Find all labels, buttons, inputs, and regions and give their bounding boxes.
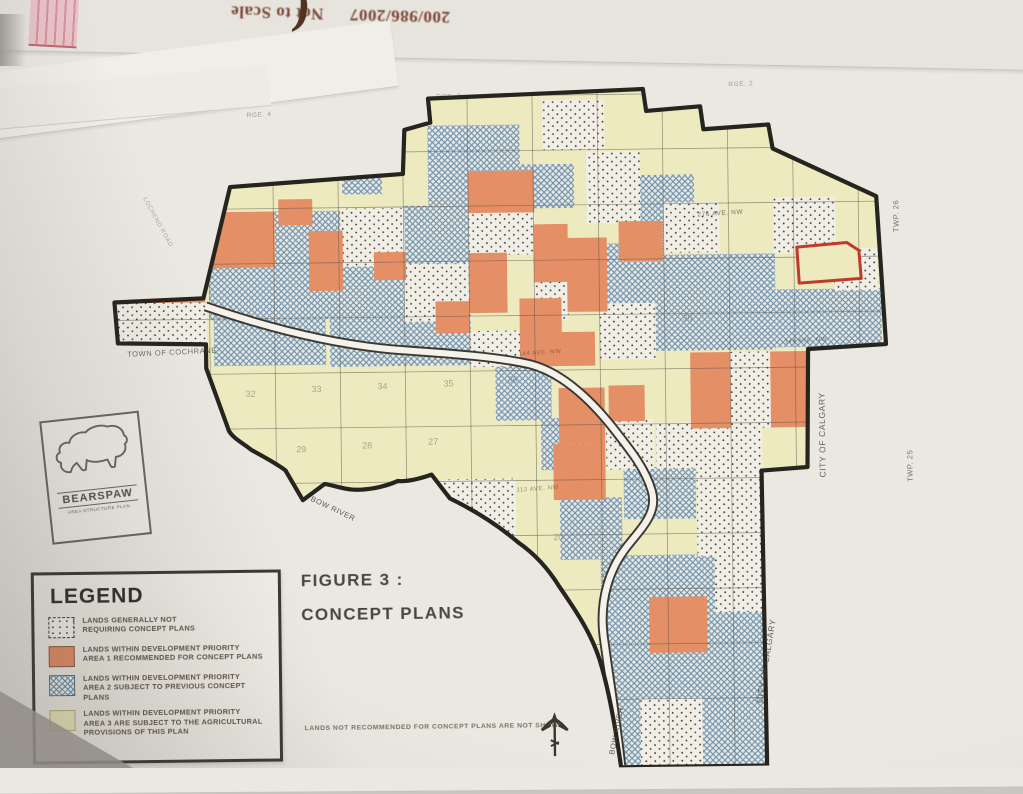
legend-title: LEGEND [50, 582, 278, 609]
legend-item-label: LANDS GENERALLY NOT REQUIRING CONCEPT PL… [82, 615, 195, 635]
section-number: 30 [683, 312, 693, 322]
priority-cell [403, 205, 470, 266]
priority-cell [560, 497, 623, 560]
priority-cell [696, 466, 761, 557]
priority-cell [623, 466, 696, 519]
legend-item-label: LANDS WITHIN DEVELOPMENT PRIORITY AREA 2… [83, 672, 271, 703]
map-label: CITY OF CALGARY [817, 392, 828, 477]
priority-cell [640, 698, 703, 765]
section-number: 20 [553, 532, 563, 542]
north-arrow-icon [534, 710, 575, 762]
figure-caption: FIGURE 3 : CONCEPT PLANS [301, 569, 465, 639]
legend: LEGEND LANDS GENERALLY NOT REQUIRING CON… [31, 569, 283, 764]
section-number: 32 [245, 389, 255, 399]
priority-cell [608, 385, 644, 421]
priority-cell [535, 332, 595, 367]
legend-item-label: LANDS WITHIN DEVELOPMENT PRIORITY AREA 3… [83, 707, 262, 738]
photo-of-paper-map: 200/986/2007 Not to Scale ( [0, 0, 1023, 768]
legend-swatch-orange [49, 646, 75, 667]
legend-swatch-hatch [49, 675, 75, 696]
priority-cell [770, 351, 809, 427]
figure-caption-line2: CONCEPT PLANS [301, 603, 465, 625]
priority-cell [374, 252, 406, 280]
legend-item: LANDS GENERALLY NOT REQUIRING CONCEPT PL… [48, 614, 270, 639]
bear-icon [46, 413, 138, 486]
section-number: 34 [377, 381, 387, 391]
priority-cell [469, 253, 508, 313]
printed-map-sheet: 32333435362928272030 TOWN OF COCHRANECIT… [0, 0, 1023, 775]
section-number: 36 [507, 375, 517, 385]
map-label: RGE. 2 [728, 80, 753, 88]
section-number: 33 [311, 384, 321, 394]
priority-cell [553, 443, 606, 500]
map-label: TWP. 25 [905, 450, 914, 483]
section-number: 29 [296, 444, 306, 454]
section-number: 28 [362, 440, 372, 450]
priority-cell [715, 554, 764, 613]
priority-cell [468, 170, 535, 213]
priority-cell [435, 301, 469, 333]
priority-cell [655, 253, 776, 350]
map-label: LOCHEND ROAD [141, 197, 173, 249]
priority-cell [690, 352, 731, 428]
highlighted-parcel [797, 242, 861, 283]
map-label: TOWN OF COCHRANE [127, 346, 217, 359]
priority-cell [730, 351, 773, 428]
legend-items: LANDS GENERALLY NOT REQUIRING CONCEPT PL… [34, 613, 279, 738]
legend-swatch-yellow [49, 710, 75, 731]
priority-cell [567, 237, 608, 311]
map-label: TWP. 26 [891, 200, 900, 233]
figure-caption-line1: FIGURE 3 : [301, 569, 465, 591]
priority-cell [618, 221, 662, 262]
priority-cell [468, 210, 535, 255]
priority-cell [599, 303, 656, 360]
section-number: 27 [428, 437, 438, 447]
priority-cell [114, 298, 207, 345]
map-label: RGE. 3 [436, 93, 461, 101]
bearspaw-logo: BEARSPAW AREA STRUCTURE PLAN [39, 411, 152, 545]
section-number: 35 [443, 378, 453, 388]
priority-cell [542, 99, 605, 150]
priority-cell [147, 252, 206, 303]
map-label: RGE. 4 [246, 111, 271, 119]
map-label: BOW RIVER [309, 494, 357, 523]
priority-cell [534, 224, 569, 282]
priority-cell [586, 151, 641, 224]
legend-item: LANDS WITHIN DEVELOPMENT PRIORITY AREA 2… [49, 672, 271, 703]
priority-cell [278, 199, 312, 225]
priority-cell [649, 596, 708, 653]
legend-swatch-dots [48, 617, 74, 638]
priority-cell [656, 422, 763, 469]
legend-item: LANDS WITHIN DEVELOPMENT PRIORITY AREA 1… [49, 643, 271, 668]
legend-item: LANDS WITHIN DEVELOPMENT PRIORITY AREA 3… [49, 707, 271, 738]
priority-cell [309, 231, 344, 291]
legend-item-label: LANDS WITHIN DEVELOPMENT PRIORITY AREA 1… [83, 643, 263, 664]
